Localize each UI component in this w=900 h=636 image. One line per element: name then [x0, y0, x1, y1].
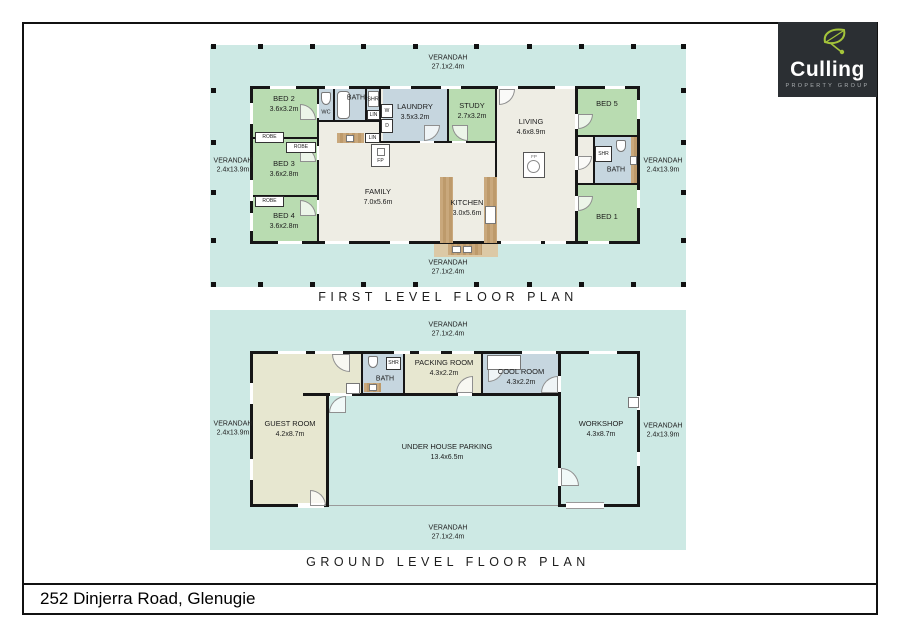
window — [250, 213, 253, 231]
verandah-post — [681, 282, 686, 287]
wall — [578, 183, 637, 185]
door-opening — [317, 104, 319, 118]
window — [325, 241, 349, 244]
robe-box: ROBE — [286, 142, 316, 153]
toilet-icon — [616, 140, 626, 152]
kitchen-label: KITCHEN3.0x5.6m — [451, 198, 484, 218]
verandah-post — [579, 44, 584, 49]
verandah-right-label: VERANDAH2.4x13.9m — [644, 422, 683, 441]
verandah-post — [310, 282, 315, 287]
washer-box: W — [381, 104, 393, 118]
kitchen-sink-icon — [452, 246, 461, 253]
wall — [319, 120, 381, 122]
verandah-post — [631, 282, 636, 287]
shower-label: SHR — [367, 96, 379, 103]
bed1-label: BED 1 — [596, 212, 618, 222]
window — [419, 351, 441, 354]
shower-box: SHR — [595, 146, 612, 162]
window — [545, 241, 566, 244]
door-opening — [458, 393, 472, 396]
robe-box: ROBE — [255, 132, 284, 143]
window — [589, 351, 617, 354]
verandah-post — [258, 44, 263, 49]
verandah-post — [211, 88, 216, 93]
wall — [361, 354, 363, 393]
verandah-top-label: VERANDAH27.1x2.4m — [429, 54, 468, 73]
toilet-icon — [368, 356, 378, 368]
address-bar: 252 Dinjerra Road, Glenugie — [22, 583, 878, 615]
door-opening — [317, 200, 319, 214]
ground-level-title: GROUND LEVEL FLOOR PLAN — [210, 555, 686, 569]
ensuite-bath-label: BATH — [607, 165, 625, 174]
fireplace-box: FP — [371, 144, 390, 167]
robe-box: ROBE — [255, 196, 284, 207]
wall — [447, 89, 449, 143]
verandah-post — [211, 190, 216, 195]
living-label: LIVING4.6x8.9m — [517, 117, 546, 137]
leaf-icon — [818, 27, 854, 55]
family-label: FAMILY7.0x5.6m — [364, 187, 393, 207]
verandah-post — [413, 282, 418, 287]
window — [637, 452, 640, 466]
verandah-right-label: VERANDAH2.4x13.9m — [644, 157, 683, 176]
verandah-post — [681, 190, 686, 195]
kitchen-sink-icon — [463, 246, 472, 253]
verandah-post — [361, 282, 366, 287]
verandah-post — [527, 282, 532, 287]
window — [452, 351, 474, 354]
verandah-post — [258, 282, 263, 287]
wc-label: WC — [321, 109, 330, 116]
linen-box: LIN — [367, 110, 380, 120]
vanity-sink-icon — [369, 384, 377, 391]
verandah-post — [681, 238, 686, 243]
cooktop-icon — [485, 206, 496, 224]
dryer-box: D — [381, 119, 393, 133]
garage-door — [566, 502, 604, 509]
wall — [578, 135, 637, 137]
guest-room-label: GUEST ROOM4.2x8.7m — [264, 419, 315, 439]
bed2-label: BED 23.6x3.2m — [270, 94, 299, 114]
bed3-label: BED 33.6x2.8m — [270, 159, 299, 179]
vanity-sink-icon — [346, 135, 354, 142]
wood-fire-box: FP — [523, 152, 545, 178]
window — [250, 180, 253, 201]
shower-box: SHR — [386, 357, 401, 370]
window — [325, 86, 349, 89]
verandah-post — [413, 44, 418, 49]
window — [605, 86, 625, 89]
verandah-post — [211, 238, 216, 243]
window — [394, 351, 410, 354]
property-address: 252 Dinjerra Road, Glenugie — [40, 589, 255, 609]
window — [637, 190, 640, 208]
window — [250, 103, 253, 124]
cool-room-label: COOL ROOM4.3x2.2m — [498, 367, 544, 387]
verandah-post — [211, 44, 216, 49]
wall — [333, 89, 335, 122]
door-opening — [420, 141, 434, 143]
verandah-post — [211, 140, 216, 145]
fireplace-label: FP — [372, 158, 389, 164]
door-opening — [452, 141, 466, 143]
window — [555, 86, 575, 89]
verandah-top-label: VERANDAH27.1x2.4m — [429, 321, 468, 340]
verandah-post — [474, 282, 479, 287]
logo-tagline-text: PROPERTY GROUP — [786, 83, 870, 89]
wall — [481, 354, 483, 393]
verandah-left-label: VERANDAH2.4x13.9m — [214, 420, 253, 439]
verandah-post — [361, 44, 366, 49]
room-guest-main — [253, 394, 326, 504]
wall — [495, 89, 497, 141]
window — [270, 86, 296, 89]
workshop-label: WORKSHOP4.3x8.7m — [579, 419, 624, 439]
verandah-post — [527, 44, 532, 49]
window — [390, 241, 409, 244]
window — [250, 383, 253, 404]
window — [522, 351, 556, 354]
meter-box-icon — [628, 397, 639, 408]
verandah-post — [681, 140, 686, 145]
window — [278, 241, 302, 244]
bed5-label: BED 5 — [596, 99, 618, 109]
wood-fire-icon — [527, 160, 540, 173]
parking-edge-line — [329, 505, 558, 506]
toilet-icon — [321, 92, 331, 105]
wall — [381, 141, 497, 143]
bath-label: BATH — [347, 93, 365, 102]
verandah-post — [631, 44, 636, 49]
verandah-post — [681, 44, 686, 49]
wood-fire-label: FP — [524, 154, 544, 159]
flyer-page: ROBE ROBE ROBE LIN LIN W D SHR FP FP BED… — [0, 0, 900, 636]
verandah-post — [211, 282, 216, 287]
verandah-post — [579, 282, 584, 287]
first-level-title: FIRST LEVEL FLOOR PLAN — [210, 290, 686, 304]
logo-brand-text: Culling — [790, 60, 865, 80]
window — [441, 86, 461, 89]
door-opening — [317, 146, 319, 160]
verandah-bottom-label: VERANDAH27.1x2.4m — [429, 524, 468, 543]
study-label: STUDY2.7x3.2m — [458, 101, 487, 121]
window — [390, 86, 411, 89]
laundry-tub-icon — [346, 383, 360, 394]
parking-label: UNDER HOUSE PARKING13.4x6.5m — [402, 442, 493, 462]
vanity-sink-icon — [630, 156, 637, 165]
fireplace-icon — [377, 148, 385, 156]
linen-box: LIN — [365, 133, 380, 143]
room-bed5 — [578, 89, 637, 135]
verandah-post — [310, 44, 315, 49]
ground-bath-label: BATH — [376, 374, 394, 383]
verandah-bottom-label: VERANDAH27.1x2.4m — [429, 259, 468, 278]
verandah-left-label: VERANDAH2.4x13.9m — [214, 157, 253, 176]
bed4-label: BED 43.6x2.8m — [270, 211, 299, 231]
window — [637, 100, 640, 119]
window — [278, 351, 306, 354]
packing-room-label: PACKING ROOM4.3x2.2m — [415, 358, 474, 378]
window — [588, 241, 609, 244]
door-opening — [558, 376, 561, 392]
window — [250, 459, 253, 480]
verandah-post — [681, 88, 686, 93]
agency-logo: Culling PROPERTY GROUP — [778, 22, 877, 97]
wall — [403, 354, 405, 393]
wall — [495, 141, 497, 177]
window — [501, 241, 541, 244]
verandah-post — [474, 44, 479, 49]
laundry-label: LAUNDRY3.5x3.2m — [397, 102, 433, 122]
